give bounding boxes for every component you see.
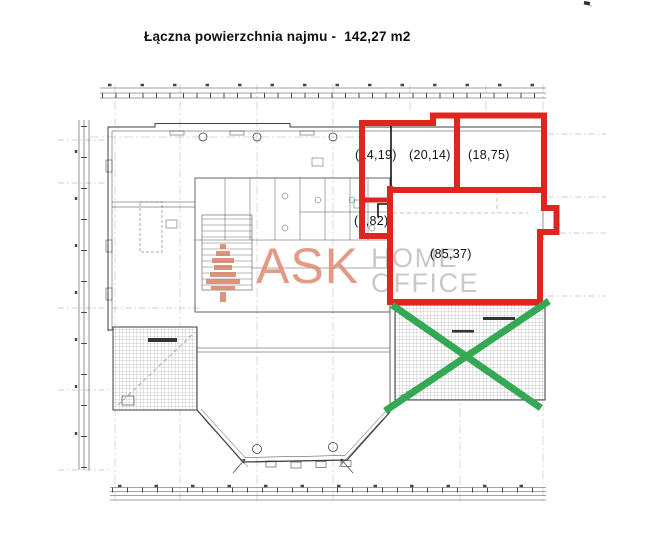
floorplan-page: Łączna powierzchnia najmu -142,27 m2 — [0, 0, 654, 536]
annotation-overlay — [0, 0, 654, 536]
excluded-area-cross — [388, 303, 546, 409]
